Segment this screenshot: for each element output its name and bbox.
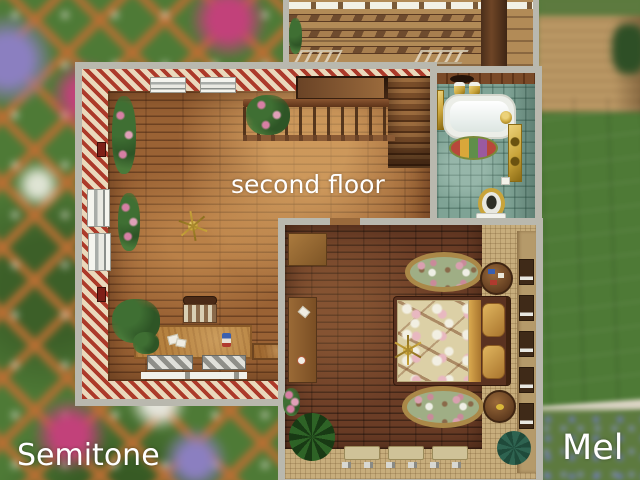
flower-on-table[interactable] <box>496 404 504 410</box>
sims-floorplan-screenshot: second floor Semitone Mel <box>0 0 640 480</box>
wall-vent <box>97 142 106 157</box>
gold-faucet[interactable] <box>500 111 512 124</box>
pillow <box>482 345 505 379</box>
bench-cushion <box>432 446 468 460</box>
bath-rug[interactable] <box>449 136 498 160</box>
bush-background <box>612 24 640 74</box>
cabinet[interactable] <box>288 233 327 266</box>
wall-window[interactable] <box>150 77 186 93</box>
wall-window[interactable] <box>519 367 534 393</box>
wall-window[interactable] <box>200 77 236 93</box>
bathroom <box>430 66 542 238</box>
wall-vine[interactable] <box>283 388 300 416</box>
deck-post <box>481 0 507 66</box>
coffee-cup[interactable] <box>297 356 306 365</box>
window-sill <box>141 372 247 379</box>
succulent-plant[interactable] <box>497 431 531 465</box>
corner-plant[interactable] <box>133 332 159 354</box>
pillow <box>482 303 505 337</box>
round-table[interactable] <box>483 390 516 423</box>
bench-cushion <box>388 446 424 460</box>
floor-label: second floor <box>231 172 385 197</box>
name-watermark: Mel <box>562 431 623 466</box>
book-on-table[interactable] <box>490 280 497 285</box>
deck-vine-plant[interactable] <box>289 18 302 54</box>
ceiling-fan[interactable] <box>391 333 425 367</box>
headboard <box>506 297 510 385</box>
wall-window[interactable] <box>519 295 534 321</box>
wall-window[interactable] <box>519 331 534 357</box>
wall-window[interactable] <box>87 189 110 227</box>
bathtub[interactable] <box>443 94 516 139</box>
wall-window[interactable] <box>88 233 111 271</box>
wall-vent <box>97 287 106 302</box>
stair-landing <box>298 78 384 98</box>
oval-rug[interactable] <box>405 252 483 292</box>
bench-cushion <box>344 446 380 460</box>
bedroom-doorway[interactable] <box>330 218 360 225</box>
deck-beam <box>289 30 491 38</box>
card-on-table[interactable] <box>498 273 504 278</box>
ceiling-fan[interactable] <box>176 209 210 243</box>
window-bench[interactable] <box>202 355 246 370</box>
paper-on-desk[interactable] <box>175 338 186 348</box>
book-on-table[interactable] <box>488 269 495 274</box>
wall-shelf[interactable] <box>508 124 522 182</box>
folded-sheet <box>469 300 481 382</box>
oval-rug[interactable] <box>402 386 484 428</box>
bedroom <box>278 218 543 480</box>
doll-on-desk[interactable] <box>222 333 231 347</box>
hanging-plant[interactable] <box>246 95 290 135</box>
desk-chair[interactable] <box>183 304 217 323</box>
desk-chair-back <box>184 297 216 304</box>
window-bench-group[interactable] <box>342 446 474 468</box>
wall-window[interactable] <box>519 403 534 429</box>
bench-legs <box>342 462 474 468</box>
paper-holder[interactable] <box>501 177 510 185</box>
railing-base <box>243 135 395 141</box>
wall-window[interactable] <box>519 259 534 285</box>
creator-watermark: Semitone <box>17 441 160 471</box>
ivy-plant[interactable] <box>112 96 136 174</box>
dresser[interactable] <box>288 297 317 383</box>
round-table[interactable] <box>480 262 513 295</box>
deck-beam <box>289 14 491 22</box>
note-on-dresser[interactable] <box>298 306 311 319</box>
window-bench[interactable] <box>147 355 193 370</box>
palm-plant[interactable] <box>289 413 335 461</box>
ivy-plant[interactable] <box>118 193 140 251</box>
staircase[interactable] <box>388 78 430 168</box>
